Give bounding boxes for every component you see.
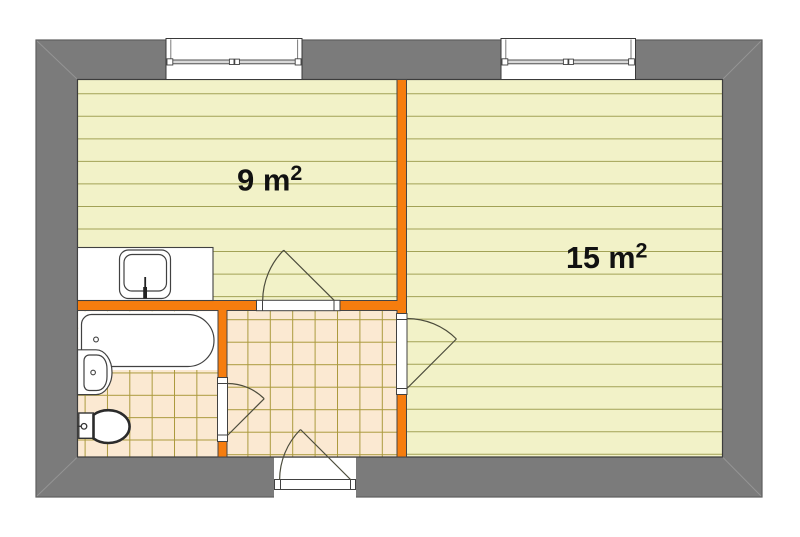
svg-text:15 m2: 15 m2 bbox=[566, 239, 648, 276]
